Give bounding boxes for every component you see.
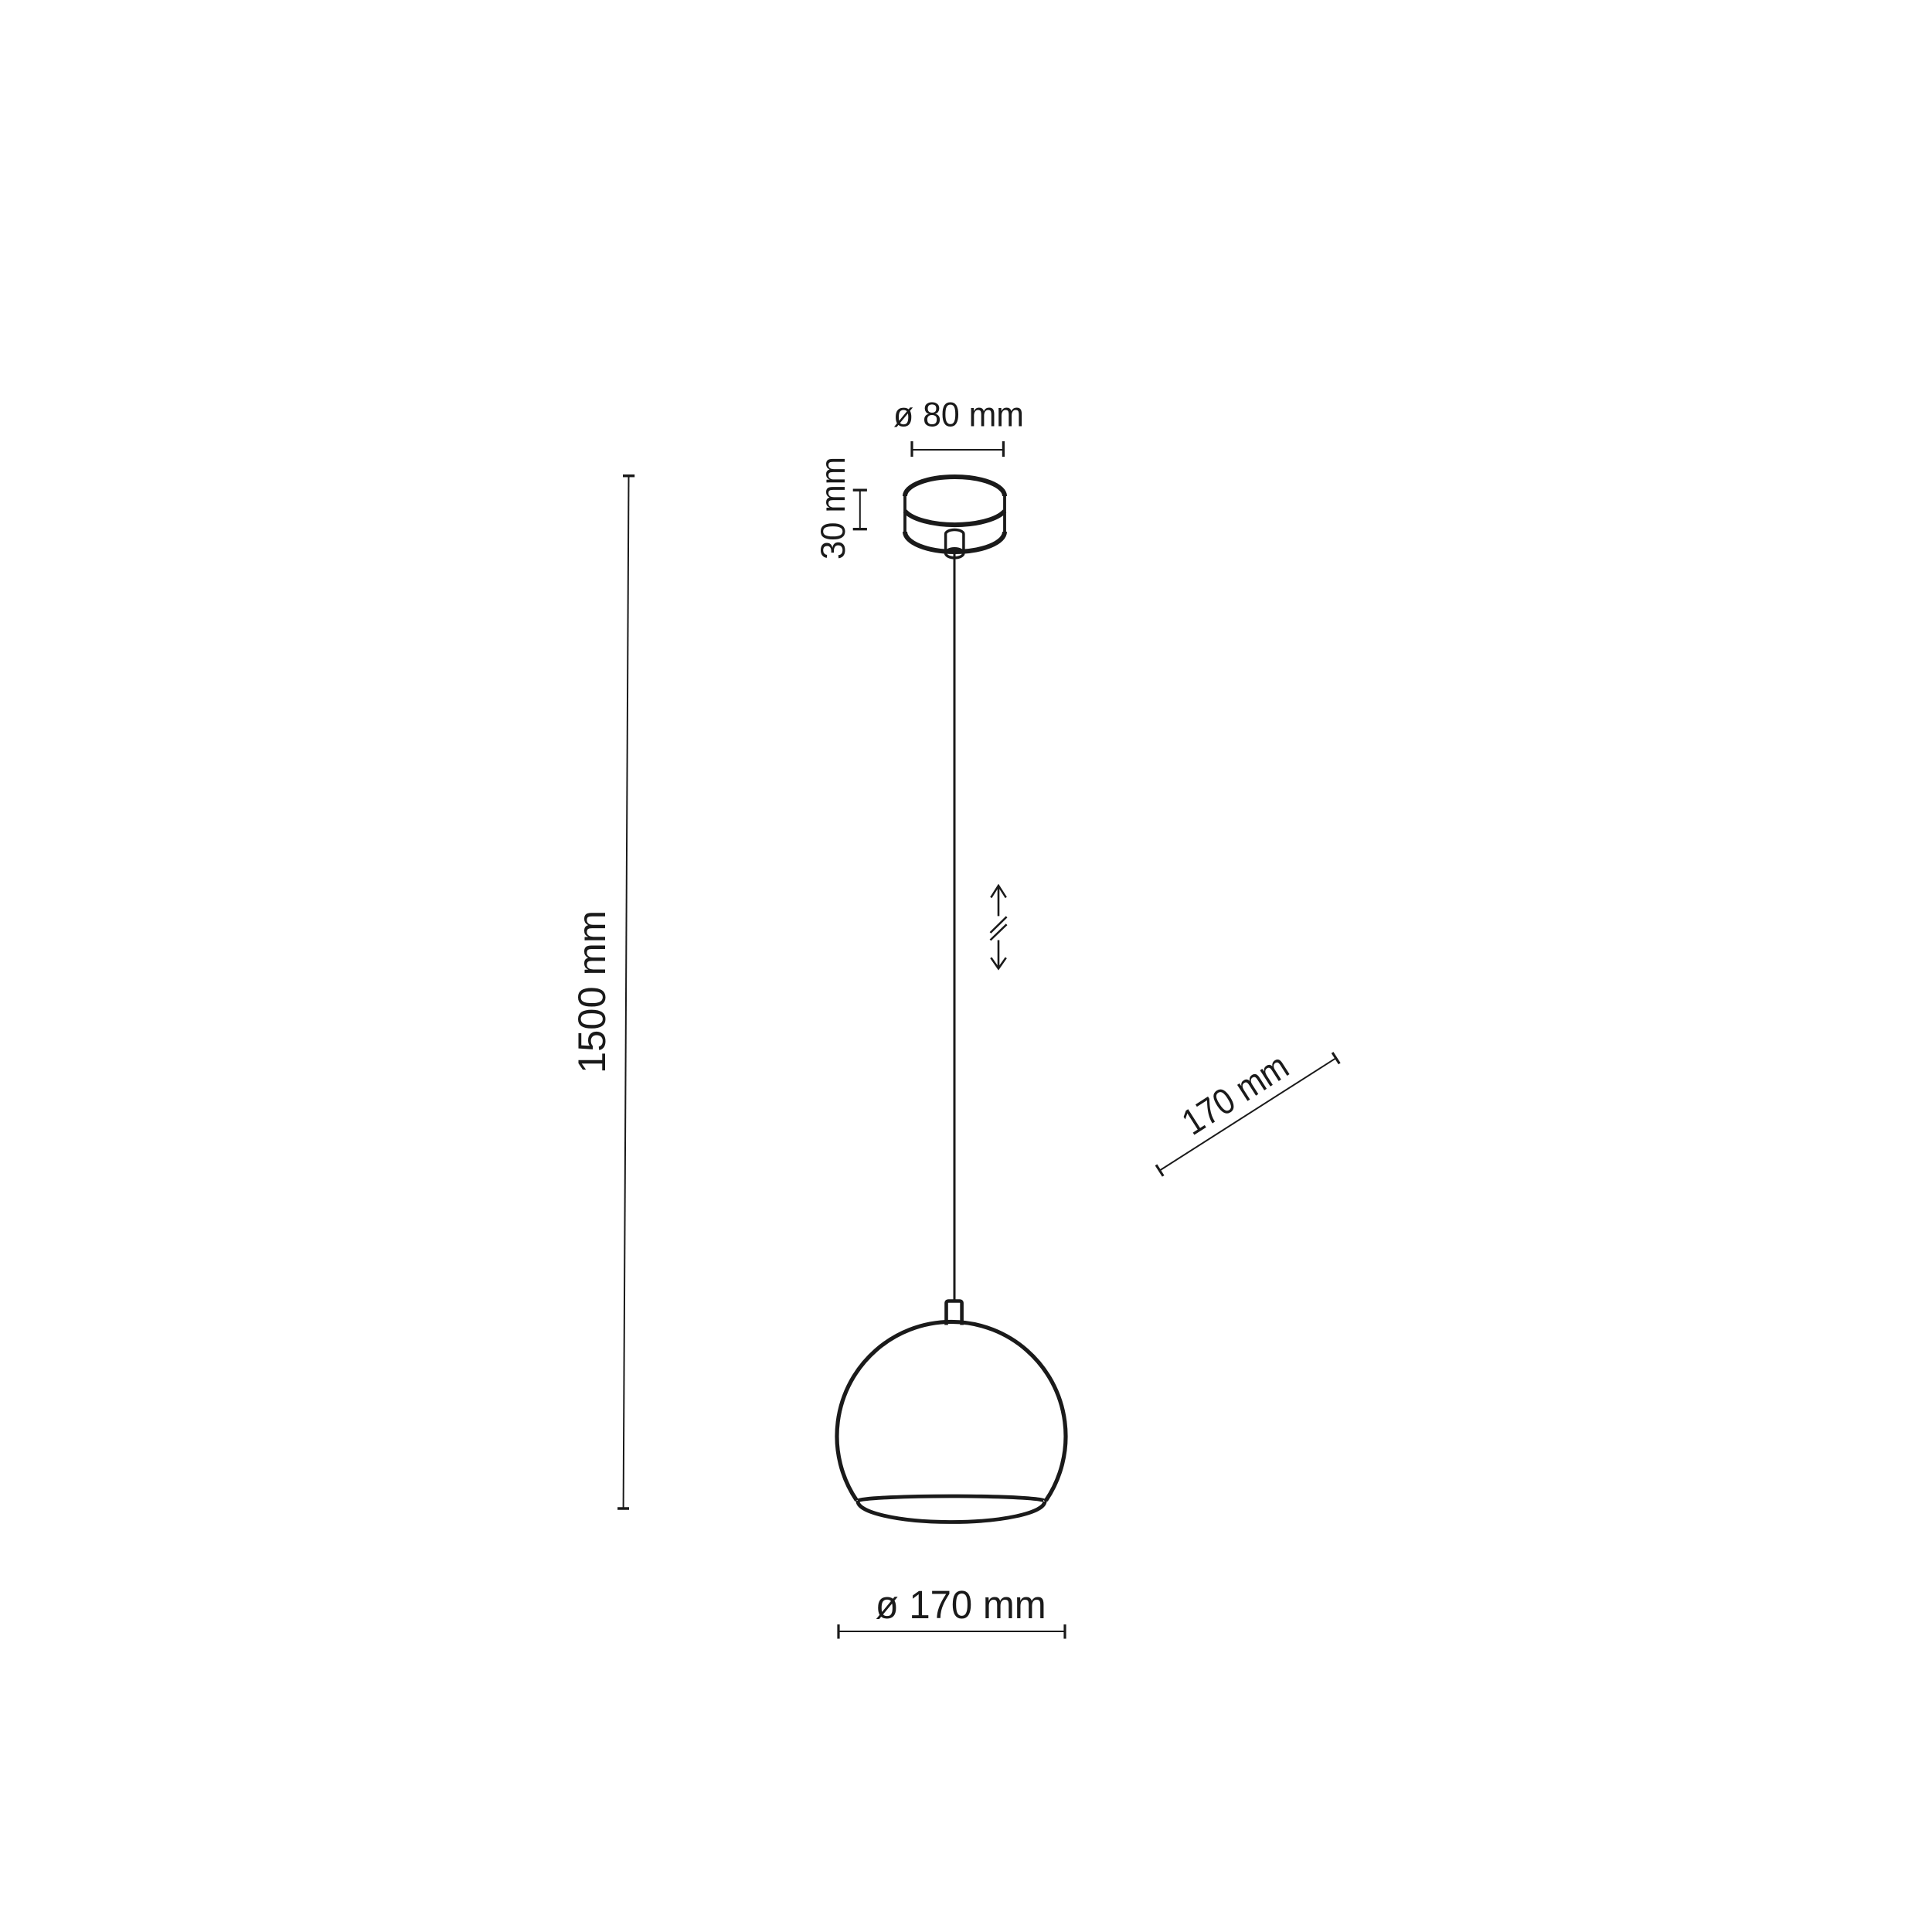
svg-text:ø 80 mm: ø 80 mm	[893, 396, 1024, 434]
svg-text:ø 170 mm: ø 170 mm	[876, 1583, 1046, 1627]
svg-text:30 mm: 30 mm	[815, 457, 852, 560]
svg-text:1500 mm: 1500 mm	[570, 910, 614, 1073]
